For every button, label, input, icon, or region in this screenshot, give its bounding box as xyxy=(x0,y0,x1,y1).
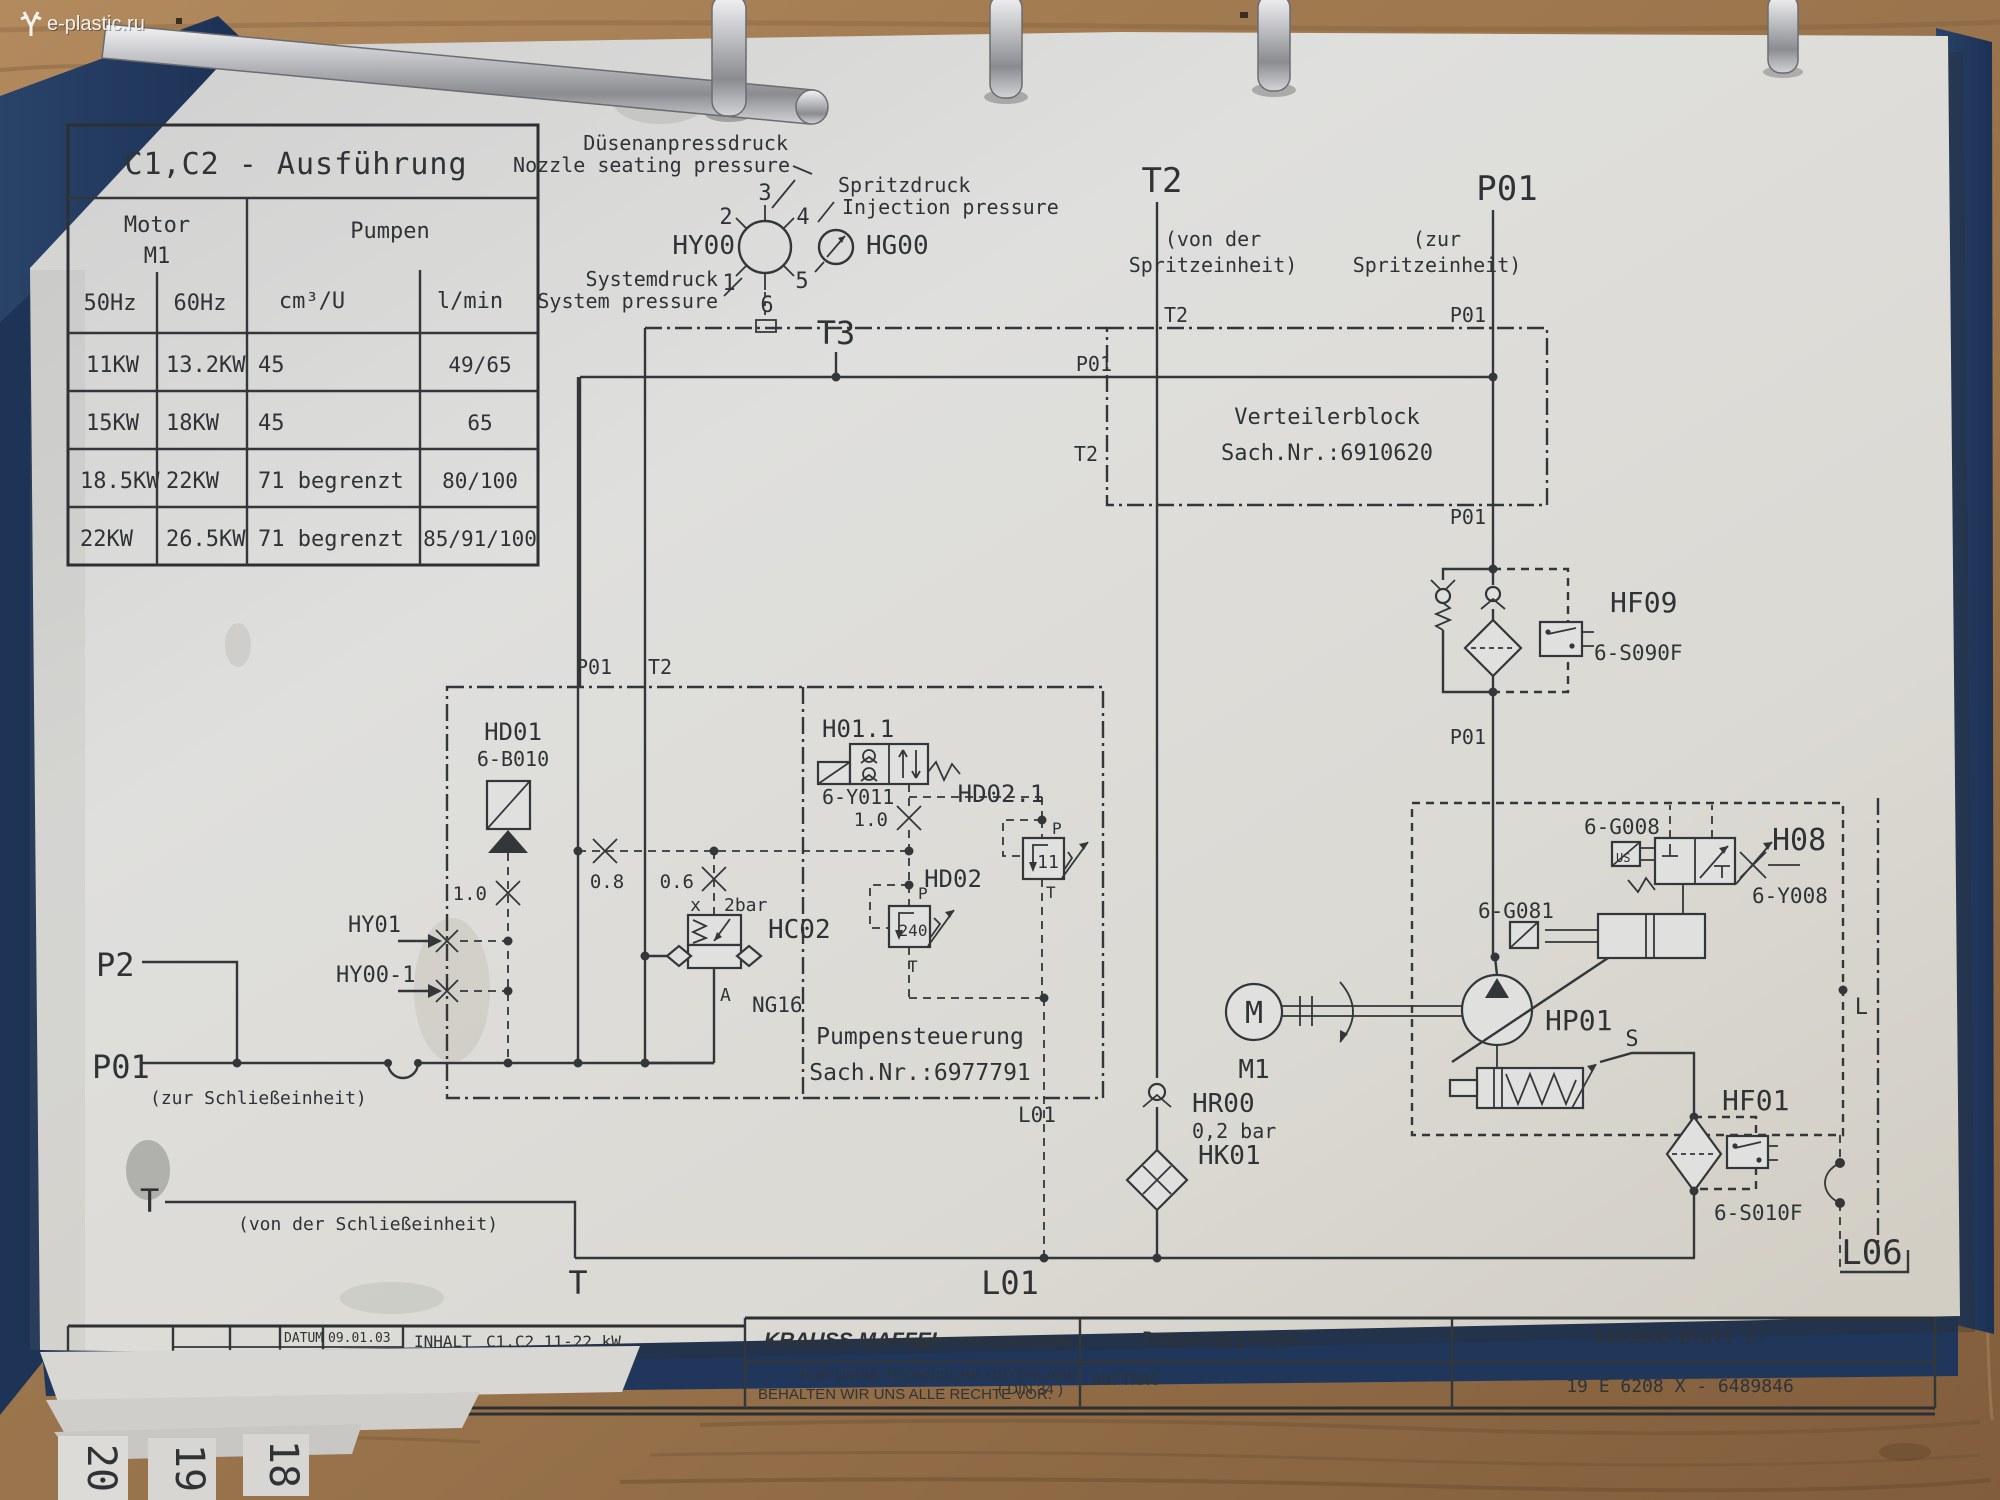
tb-auftrag: AUFTRAG xyxy=(1092,1370,1159,1389)
cell: 13.2KW xyxy=(166,353,246,378)
port-s: S xyxy=(1625,1027,1638,1052)
label-duesen-de: Düsenanpressdruck xyxy=(583,131,788,155)
l01-box-label: L01 xyxy=(1018,1103,1056,1127)
hd02-p: P xyxy=(918,884,928,903)
hd02-1-t: T xyxy=(1046,883,1056,902)
t2-small-top: T2 xyxy=(1164,303,1188,327)
col-motor: Motor xyxy=(124,213,190,238)
dial-pos-6: 6 xyxy=(760,293,773,318)
hd01-code: 6-B010 xyxy=(477,747,549,771)
box-port-t2: T2 xyxy=(648,655,672,679)
label-spritz-de: Spritzdruck xyxy=(838,173,970,197)
verteilerblock-sachnr: Sach.Nr.:6910620 xyxy=(1221,441,1433,466)
hd02-1-p: P xyxy=(1052,819,1062,838)
h08-id: H08 xyxy=(1772,823,1826,858)
hf09-id: HF09 xyxy=(1610,586,1677,619)
h011-id: H01.1 xyxy=(822,715,894,743)
binder-ring xyxy=(1768,0,1798,73)
cell: 11KW xyxy=(86,353,140,378)
hr00-id: HR00 xyxy=(1192,1089,1255,1119)
port-l01: L01 xyxy=(981,1264,1039,1302)
selector-id: HY00 xyxy=(672,231,735,261)
cell: 45 xyxy=(258,353,285,378)
orifice-1.0-a: 1.0 xyxy=(453,883,487,905)
cell: 71 begrenzt xyxy=(258,527,404,552)
hc02-port-a: A xyxy=(720,985,731,1006)
cell: 65 xyxy=(467,411,492,435)
hd02-id: HD02 xyxy=(924,865,982,893)
hc02-size: NG16 xyxy=(752,993,803,1017)
photo-of-hydraulic-schematic: C1,C2 - Ausführung Motor M1 Pumpen 50Hz … xyxy=(0,0,2000,1500)
g008-code: 6-G008 xyxy=(1584,815,1660,839)
col-motor-sub: M1 xyxy=(144,244,171,269)
hr00-value: 0,2 bar xyxy=(1192,1119,1276,1143)
cell: 80/100 xyxy=(442,469,518,493)
cell: 22KW xyxy=(80,527,134,552)
hk01-id: HK01 xyxy=(1198,1141,1261,1171)
t2-sub1: (von der xyxy=(1165,227,1261,251)
tab-19[interactable]: 19 xyxy=(166,1444,212,1492)
label-system-en: System pressure xyxy=(537,289,718,313)
tb-doc-no1: 6489846-Blatt 2- xyxy=(1593,1328,1766,1349)
t2-sub2: Spritzeinheit) xyxy=(1129,253,1298,277)
orifice-1.0-b: 1.0 xyxy=(854,809,888,831)
cell: 85/91/100 xyxy=(423,527,537,551)
col-cm3u: cm³/U xyxy=(279,289,345,314)
pumpensteuerung-title: Pumpensteuerung xyxy=(816,1024,1024,1050)
col-pumpen: Pumpen xyxy=(350,219,429,244)
hc02-id: HC02 xyxy=(768,915,831,945)
hf01-id: HF01 xyxy=(1722,1084,1789,1117)
t-left-sub: (von der Schließeinheit) xyxy=(238,1214,498,1235)
p01-sub2: Spritzeinheit) xyxy=(1353,253,1522,277)
tb-datum-label: DATUM xyxy=(284,1331,323,1346)
p01-left-sub: (zur Schließeinheit) xyxy=(150,1088,367,1109)
label-spritz-en: Injection pressure xyxy=(842,195,1059,219)
label-duesen-en: Nozzle seating pressure xyxy=(513,153,790,177)
g008-us: US xyxy=(1616,851,1630,865)
cell: 18.5KW xyxy=(80,469,160,494)
hd02-value: 240 xyxy=(899,921,928,940)
table-row: 18.5KW 22KW 71 begrenzt 80/100 xyxy=(80,469,518,494)
hd02-1-value: 11 xyxy=(1037,852,1059,873)
hd02-1-id: HD02.1 xyxy=(958,780,1045,808)
tb-datum: 09.01.03 xyxy=(328,1331,391,1346)
col-60hz: 60Hz xyxy=(174,291,227,316)
hf09-code: 6-S090F xyxy=(1594,641,1683,665)
hp01-id: HP01 xyxy=(1545,1004,1612,1037)
port-l: L xyxy=(1855,995,1868,1020)
tb-company-rest: KUNSTSTOFFTECHNIK GMBH xyxy=(905,1337,1072,1349)
p01-sub1: (zur xyxy=(1413,227,1461,251)
cell: 71 begrenzt xyxy=(258,469,404,494)
label-system-de: Systemdruck xyxy=(586,267,718,291)
tb-doc-no2: 19 E 6208 X - 6489846 xyxy=(1566,1376,1794,1397)
col-50hz: 50Hz xyxy=(84,291,137,316)
gauge-id: HG00 xyxy=(866,231,929,261)
tb-project: Pumpenaggregat xyxy=(1142,1328,1302,1350)
binder-ring xyxy=(1258,0,1290,91)
p01-small-low: P01 xyxy=(1450,725,1486,749)
tab-20[interactable]: 20 xyxy=(78,1444,124,1492)
cell: 26.5KW xyxy=(166,527,246,552)
pumpensteuerung-sachnr: Sach.Nr.:6977791 xyxy=(809,1060,1031,1086)
box-port-p01: P01 xyxy=(576,655,612,679)
port-t2-main: T2 xyxy=(1142,161,1183,201)
cell: 22KW xyxy=(166,469,220,494)
hy01-label: HY01 xyxy=(348,913,401,938)
col-lmin: l/min xyxy=(437,289,503,314)
t2-small-mid: T2 xyxy=(1074,442,1098,466)
binder-ring xyxy=(712,0,746,116)
cell: 49/65 xyxy=(448,353,511,377)
port-t-left: T xyxy=(140,1182,159,1220)
spec-table-title: C1,C2 - Ausführung xyxy=(124,147,467,182)
p01-small-top: P01 xyxy=(1450,303,1486,327)
g081-code: 6-G081 xyxy=(1478,899,1554,923)
hc02-pressure: 2bar xyxy=(724,895,768,916)
p01-small-mid: P01 xyxy=(1450,505,1486,529)
y008-code: 6-Y008 xyxy=(1752,884,1828,908)
port-p01-left: P01 xyxy=(92,1048,150,1086)
port-p2: P2 xyxy=(96,946,135,984)
cell: 45 xyxy=(258,411,285,436)
port-t3: T3 xyxy=(817,314,856,352)
port-t-bottom: T xyxy=(568,1264,587,1302)
verteilerblock-title: Verteilerblock xyxy=(1234,405,1419,430)
hy00-1-label: HY00-1 xyxy=(336,963,415,988)
binder-ring xyxy=(990,0,1022,98)
watermark-text: e-plastic.ru xyxy=(47,13,145,35)
orifice-0.8: 0.8 xyxy=(590,871,624,893)
motor-id: M1 xyxy=(1238,1055,1269,1085)
orifice-0.6: 0.6 xyxy=(660,871,694,893)
motor-symbol: M xyxy=(1245,996,1263,1031)
hd01-id: HD01 xyxy=(484,718,542,746)
dial-pos-5: 5 xyxy=(795,269,808,294)
hf01-code: 6-S010F xyxy=(1714,1201,1803,1225)
dial-pos-1: 1 xyxy=(722,271,735,296)
port-l06: L06 xyxy=(1841,1233,1902,1273)
dial-pos-2: 2 xyxy=(719,205,732,230)
tab-18[interactable]: 18 xyxy=(260,1440,306,1488)
scene: C1,C2 - Ausführung Motor M1 Pumpen 50Hz … xyxy=(0,0,2000,1500)
binder-bar-cap xyxy=(796,90,828,124)
cell: 15KW xyxy=(86,411,140,436)
dial-pos-3: 3 xyxy=(758,181,771,206)
dial-pos-4: 4 xyxy=(796,205,809,230)
hc02-x: x xyxy=(690,895,701,916)
h011-code: 6-Y011 xyxy=(822,785,894,809)
cell: 18KW xyxy=(166,411,220,436)
port-p01-main: P01 xyxy=(1476,169,1537,209)
tb-din: ( DIN 34 ) xyxy=(998,1381,1063,1398)
